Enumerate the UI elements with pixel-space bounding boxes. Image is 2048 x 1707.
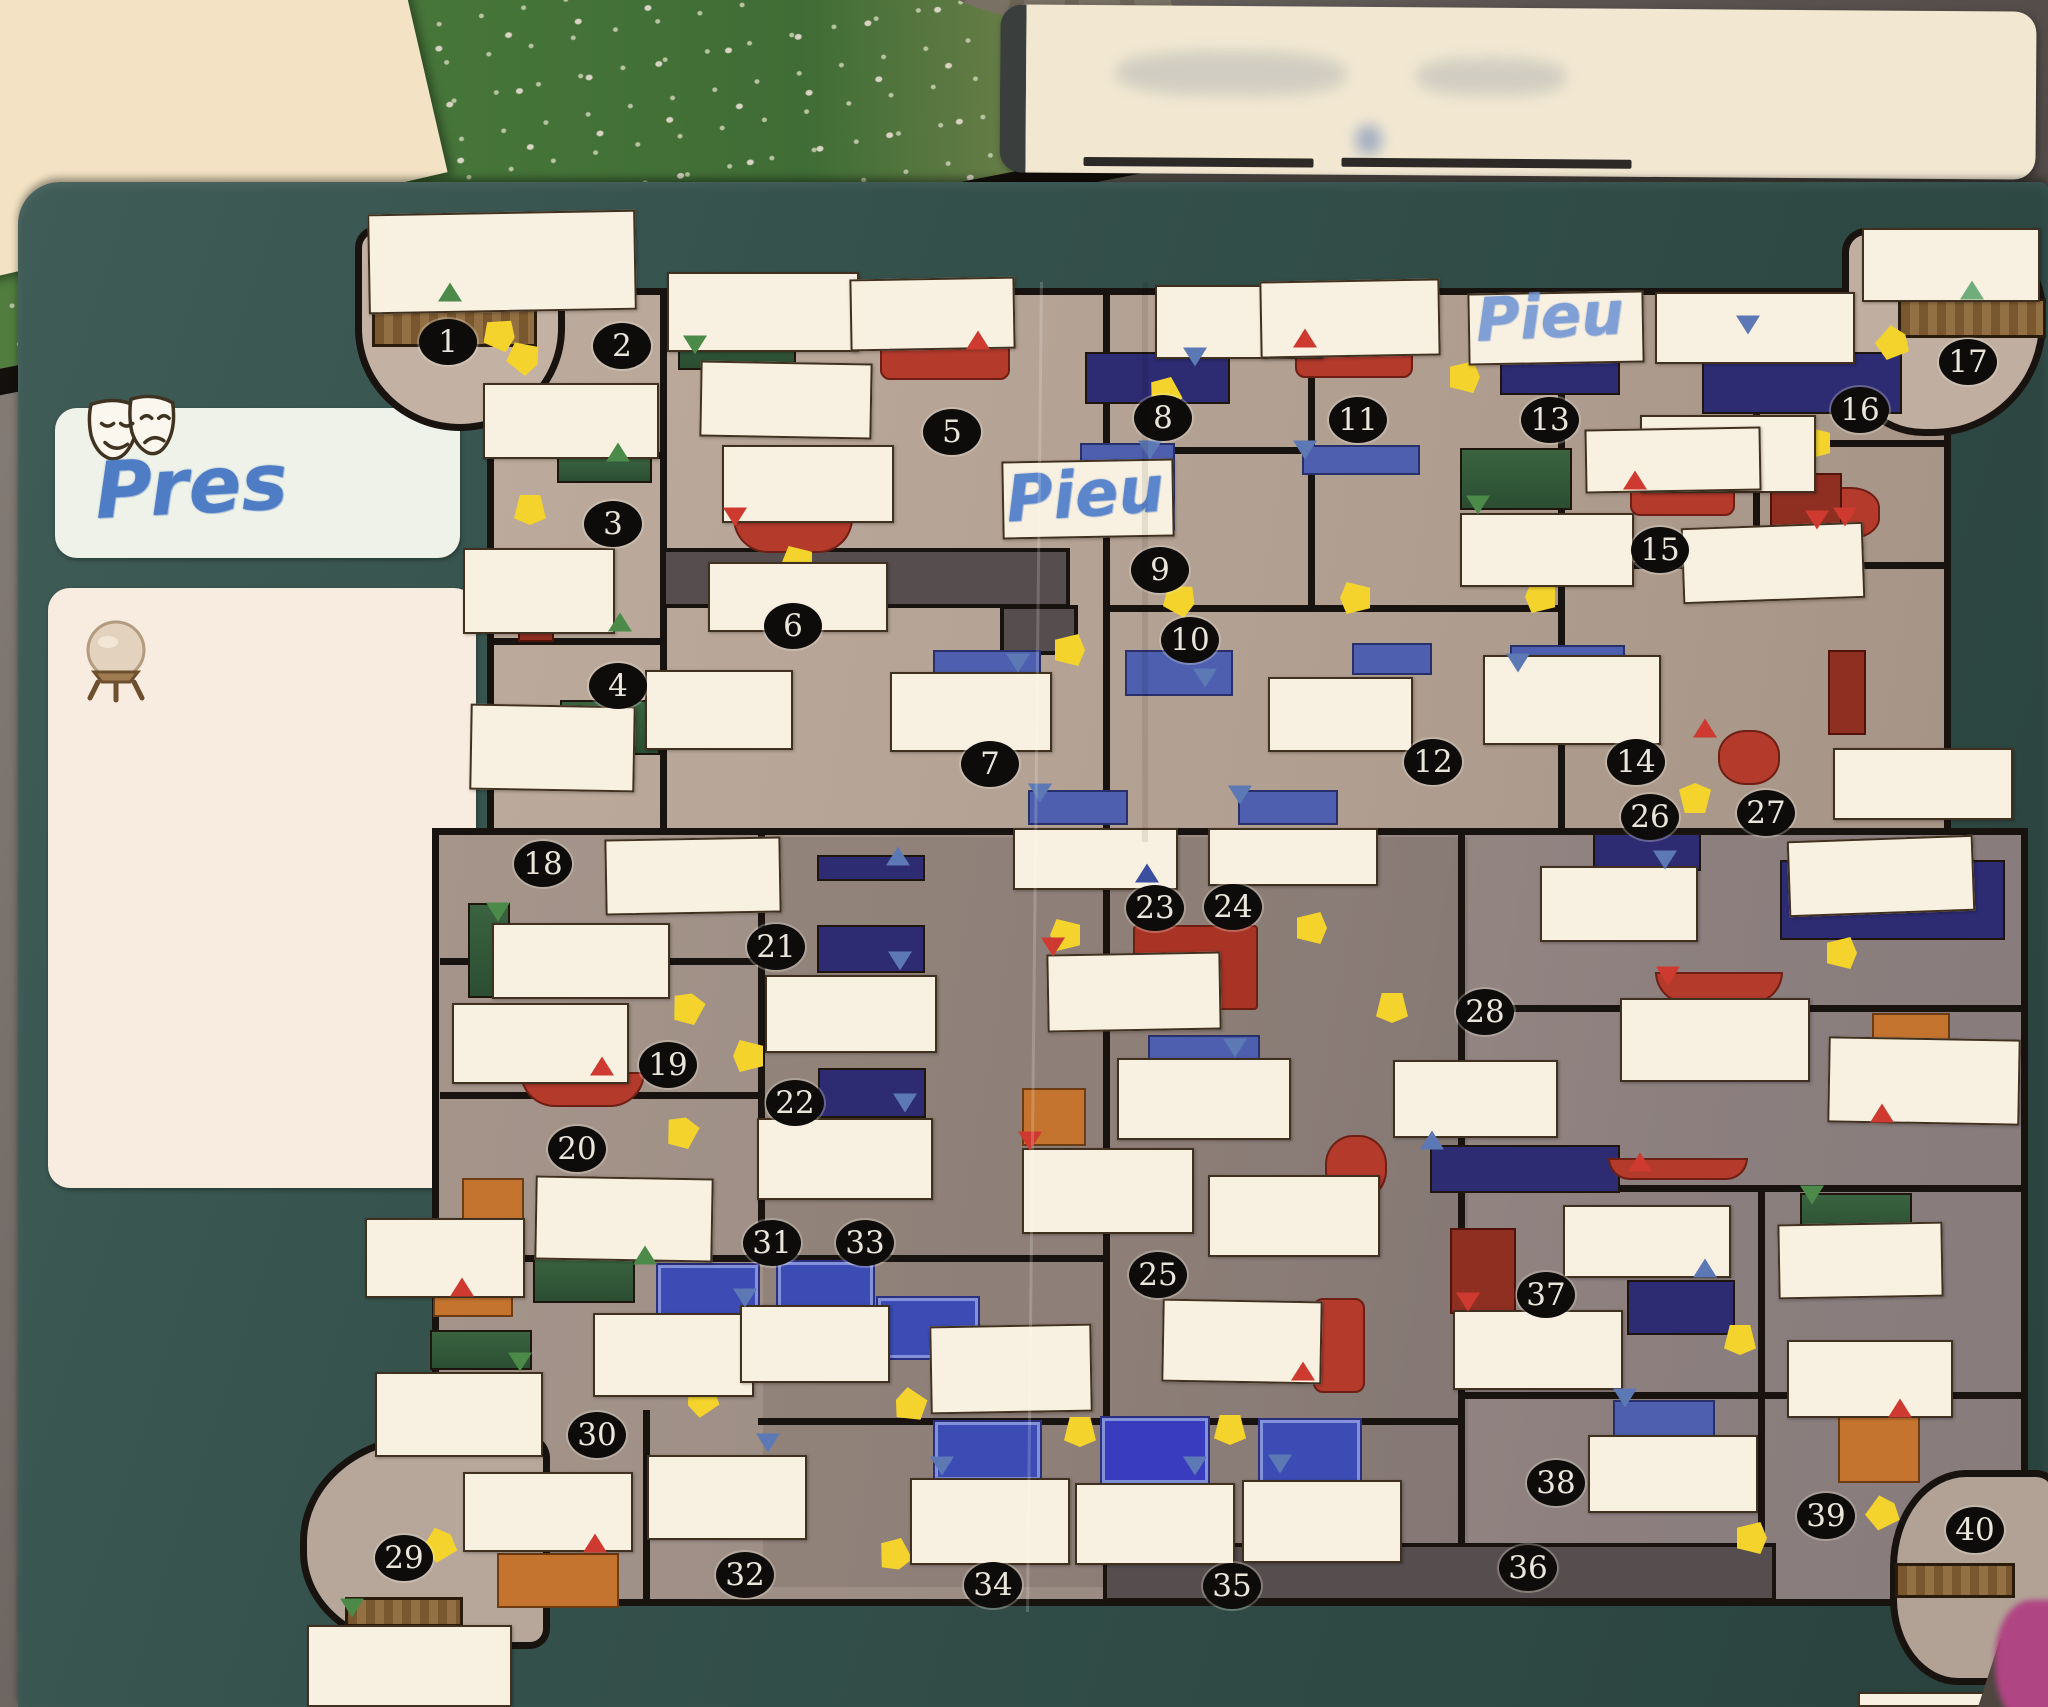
marker-triangle-red	[1805, 511, 1829, 530]
marker-triangle-blue	[1135, 864, 1159, 883]
marker-triangle-green	[608, 613, 632, 632]
room-name-label	[1046, 951, 1221, 1032]
room-token: 26	[1621, 794, 1679, 840]
room-token: 16	[1831, 387, 1889, 433]
room-token: 14	[1607, 739, 1665, 785]
wooden-dresser	[497, 1553, 619, 1608]
marker-triangle-red	[1656, 967, 1680, 986]
marker-triangle-green	[683, 336, 707, 355]
room-token: 11	[1329, 397, 1387, 443]
blue-rug	[1352, 643, 1432, 675]
room-name-label	[929, 1324, 1093, 1415]
room-token: 2	[593, 323, 651, 369]
room-token: 32	[716, 1552, 774, 1598]
room-token: 39	[1797, 1493, 1855, 1539]
marker-triangle-red	[450, 1278, 474, 1297]
room-token: 3	[584, 501, 642, 547]
marker-triangle-green	[1800, 1186, 1824, 1205]
room-name-label-handwritten: Pieu	[1001, 459, 1174, 540]
handwritten-role-name: Pres	[93, 437, 290, 537]
marker-triangle-red	[1293, 329, 1317, 348]
wall	[1458, 832, 1465, 1602]
marker-triangle-green	[1466, 496, 1490, 515]
room-name-label	[722, 445, 894, 523]
room-name-label	[1022, 1148, 1194, 1234]
crystal-ball-icon	[74, 616, 158, 706]
writing-line	[1083, 157, 1313, 168]
marker-triangle-green	[340, 1599, 364, 1618]
wall	[487, 638, 667, 645]
room-token: 5	[923, 409, 981, 455]
room-name-label	[365, 1218, 525, 1298]
room-token: 37	[1517, 1272, 1575, 1318]
room-token: 1	[419, 319, 477, 365]
marker-triangle-red	[583, 1534, 607, 1553]
room-name-label	[1620, 998, 1810, 1082]
board-fold-crease	[1142, 282, 1148, 842]
marker-triangle-green	[508, 1353, 532, 1372]
navy-rug	[1430, 1145, 1620, 1193]
green-bench	[557, 455, 652, 483]
room-name-label	[1777, 1222, 1943, 1300]
room-name-label	[1242, 1480, 1402, 1563]
marker-triangle-red	[590, 1057, 614, 1076]
marker-triangle-blue	[888, 952, 912, 971]
marker-triangle-blue	[1006, 654, 1030, 673]
marker-triangle-red	[966, 331, 990, 350]
room-token: 7	[961, 741, 1019, 787]
marker-triangle-red	[1833, 508, 1857, 527]
room-name-label	[699, 361, 872, 440]
room-name-label	[1208, 1175, 1380, 1257]
room-token: 24	[1204, 884, 1262, 930]
room-name-label	[604, 836, 781, 915]
marker-triangle-green	[633, 1246, 657, 1265]
marker-triangle-blue	[1736, 316, 1760, 335]
room-name-label	[375, 1372, 543, 1457]
room-name-label	[1862, 228, 2040, 302]
room-token: 25	[1129, 1252, 1187, 1298]
room-name-label	[1117, 1058, 1291, 1140]
room-name-label	[1208, 828, 1378, 886]
ink-dot	[1356, 125, 1382, 155]
room-token: 36	[1499, 1545, 1557, 1591]
room-name-label	[1787, 1340, 1953, 1418]
room-name-label	[534, 1175, 713, 1262]
blue-rug	[1238, 790, 1338, 825]
room-name-label	[765, 975, 937, 1053]
marker-triangle-blue	[1420, 1131, 1444, 1150]
room-token: 20	[548, 1126, 606, 1172]
marker-triangle-green	[486, 903, 510, 922]
room-token: 23	[1126, 885, 1184, 931]
room-name-label	[463, 1472, 633, 1552]
marker-triangle-red	[1888, 1399, 1912, 1418]
room-name-label	[1827, 1036, 2020, 1125]
room-name-label	[463, 548, 615, 634]
marker-triangle-green	[438, 283, 462, 302]
marker-triangle-green	[606, 443, 630, 462]
blue-rug	[1302, 445, 1420, 475]
room-token: 19	[639, 1042, 697, 1088]
room-token: 4	[589, 663, 647, 709]
marker-triangle-blue	[1228, 786, 1252, 805]
marker-triangle-blue	[930, 1457, 954, 1476]
marker-triangle-blue	[1193, 669, 1217, 688]
marker-triangle-red	[1456, 1293, 1480, 1312]
room-name-label	[1393, 1060, 1558, 1138]
room-name-label	[1787, 835, 1976, 917]
room-name-label	[1460, 513, 1634, 587]
room-name-label	[1681, 522, 1866, 604]
room-token: 29	[375, 1535, 433, 1581]
wooden-dresser	[1838, 1415, 1920, 1483]
room-token: 22	[766, 1080, 824, 1126]
room-name-label	[1584, 426, 1761, 493]
marker-triangle-red	[1291, 1362, 1315, 1381]
room-token: 9	[1131, 547, 1189, 593]
room-name-label	[469, 704, 635, 793]
photo-of-game-table: Pres	[0, 0, 2048, 1707]
marker-triangle-red	[1041, 938, 1065, 957]
marker-triangle-green	[1960, 281, 1984, 300]
room-token: 18	[514, 841, 572, 887]
room-token: 34	[964, 1562, 1022, 1608]
ornate-rug	[1260, 1420, 1360, 1485]
marker-triangle-red	[723, 508, 747, 527]
red-armchair	[1718, 730, 1780, 785]
bench	[1898, 298, 2046, 338]
room-token: 21	[747, 924, 805, 970]
marker-triangle-blue	[1183, 348, 1207, 367]
writing-line	[1341, 158, 1631, 169]
marker-triangle-red	[1628, 1153, 1652, 1172]
marker-triangle-blue	[1293, 441, 1317, 460]
room-name-label	[890, 672, 1052, 752]
room-token: 6	[764, 603, 822, 649]
room-token: 40	[1946, 1507, 2004, 1553]
room-token: 33	[836, 1220, 894, 1266]
red-bookshelf	[1828, 650, 1866, 735]
room-token: 30	[568, 1412, 626, 1458]
room-name-label	[1540, 866, 1698, 942]
room-name-label	[910, 1478, 1070, 1565]
navy-rug	[1500, 360, 1620, 395]
marker-triangle-red	[1623, 471, 1647, 490]
room-name-label	[367, 210, 637, 315]
role-card-medium	[48, 588, 476, 1188]
room-name-label	[740, 1305, 890, 1383]
room-name-label	[1259, 278, 1440, 358]
room-name-label	[757, 1118, 933, 1200]
erased-writing-smudge	[1416, 57, 1566, 96]
role-card-theater: Pres	[55, 408, 460, 558]
room-name-label	[593, 1313, 754, 1397]
room-token: 12	[1404, 739, 1462, 785]
room-name-label-handwritten: Pieu	[1467, 290, 1644, 365]
room-name-label	[849, 277, 1015, 352]
room-name-label	[492, 923, 670, 999]
room-token: 17	[1939, 339, 1997, 385]
handwritten-room-name: Pieu	[1474, 278, 1625, 356]
marker-triangle-blue	[1223, 1039, 1247, 1058]
room-name-label	[1833, 748, 2013, 820]
room-token: 15	[1631, 527, 1689, 573]
room-token: 10	[1161, 617, 1219, 663]
marker-triangle-blue	[1693, 1259, 1717, 1278]
bench	[1895, 1563, 2015, 1598]
room-token: 38	[1527, 1460, 1585, 1506]
marker-triangle-blue	[1028, 784, 1052, 803]
marker-triangle-blue	[893, 1094, 917, 1113]
room-token: 35	[1203, 1563, 1261, 1609]
marker-triangle-blue	[1613, 1389, 1637, 1408]
marker-triangle-red	[1870, 1104, 1894, 1123]
green-bed	[533, 1255, 635, 1303]
marker-triangle-blue	[1268, 1455, 1292, 1474]
erased-writing-smudge	[1116, 50, 1346, 97]
marker-triangle-blue	[1506, 654, 1530, 673]
room-name-label	[645, 670, 793, 750]
marker-triangle-blue	[1183, 1457, 1207, 1476]
note-card	[999, 4, 2036, 179]
room-name-label	[483, 383, 659, 459]
navy-rug	[1627, 1280, 1735, 1335]
room-name-label	[1453, 1310, 1623, 1390]
room-name-label	[647, 1455, 807, 1540]
room-name-label	[1588, 1435, 1758, 1513]
room-token: 13	[1521, 397, 1579, 443]
marker-triangle-red	[1693, 719, 1717, 738]
marker-triangle-blue	[756, 1434, 780, 1453]
room-token: 28	[1456, 989, 1514, 1035]
mansion-map-board: Pres	[18, 182, 2048, 1707]
room-name-label	[307, 1625, 512, 1707]
marker-triangle-blue	[733, 1289, 757, 1308]
room-token: 31	[743, 1220, 801, 1266]
room-name-label	[1075, 1483, 1235, 1565]
room-name-label	[1268, 677, 1413, 752]
room-token: 27	[1737, 790, 1795, 836]
marker-triangle-blue	[1653, 851, 1677, 870]
marker-triangle-blue	[886, 847, 910, 866]
